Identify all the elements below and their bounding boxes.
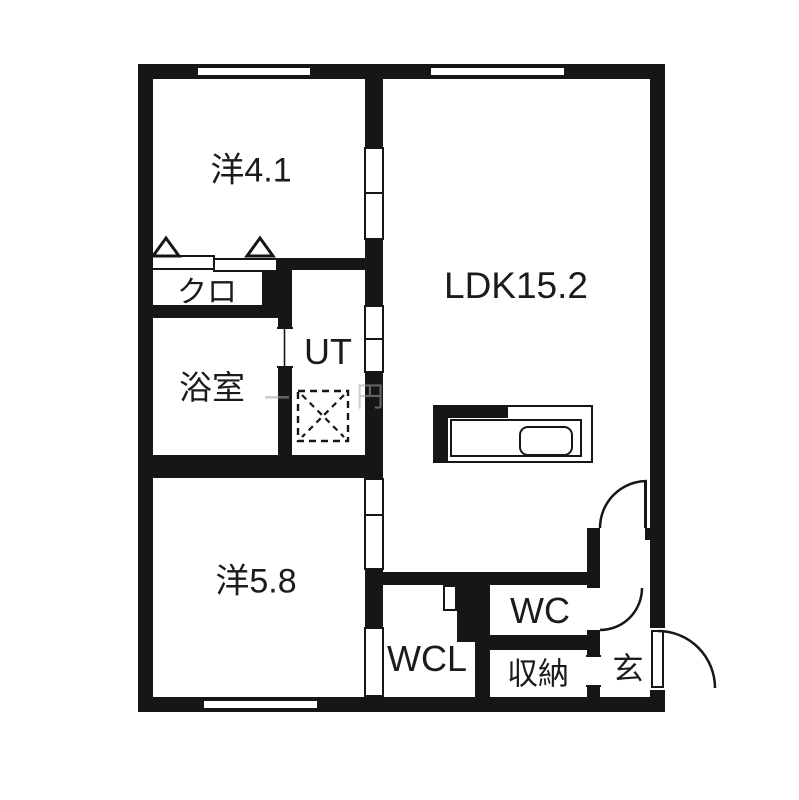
symbols-overlay: [0, 0, 799, 800]
wc-door-arc: [600, 588, 642, 630]
watermark-left: ー: [262, 374, 292, 418]
washer-space-x2-icon: [302, 395, 344, 437]
room-label-ut: UT: [304, 331, 352, 373]
room-label-entry: 玄: [613, 644, 644, 689]
closet-triangle-right-icon: [247, 238, 273, 256]
room-label-storage: 収納: [507, 649, 569, 694]
room-label-yo41: 洋4.1: [210, 143, 291, 192]
room-label-bath: 浴室: [179, 361, 245, 409]
watermark-right: 円: [356, 375, 384, 415]
washer-space-x1-icon: [302, 395, 344, 437]
room-label-wc: WC: [510, 590, 570, 632]
room-label-yo58: 洋5.8: [215, 554, 296, 603]
room-label-ldk: LDK15.2: [444, 265, 588, 307]
floor-plan: 洋4.1 クロ 浴室 UT LDK15.2 洋5.8 WCL WC 収納 玄 ー…: [0, 0, 799, 800]
room-label-kuro: クロ: [177, 267, 237, 311]
closet-triangle-left-icon: [153, 238, 179, 256]
entrance-door-arc: [658, 631, 715, 688]
hall-door-arc: [600, 481, 647, 528]
room-label-wcl: WCL: [387, 638, 467, 680]
